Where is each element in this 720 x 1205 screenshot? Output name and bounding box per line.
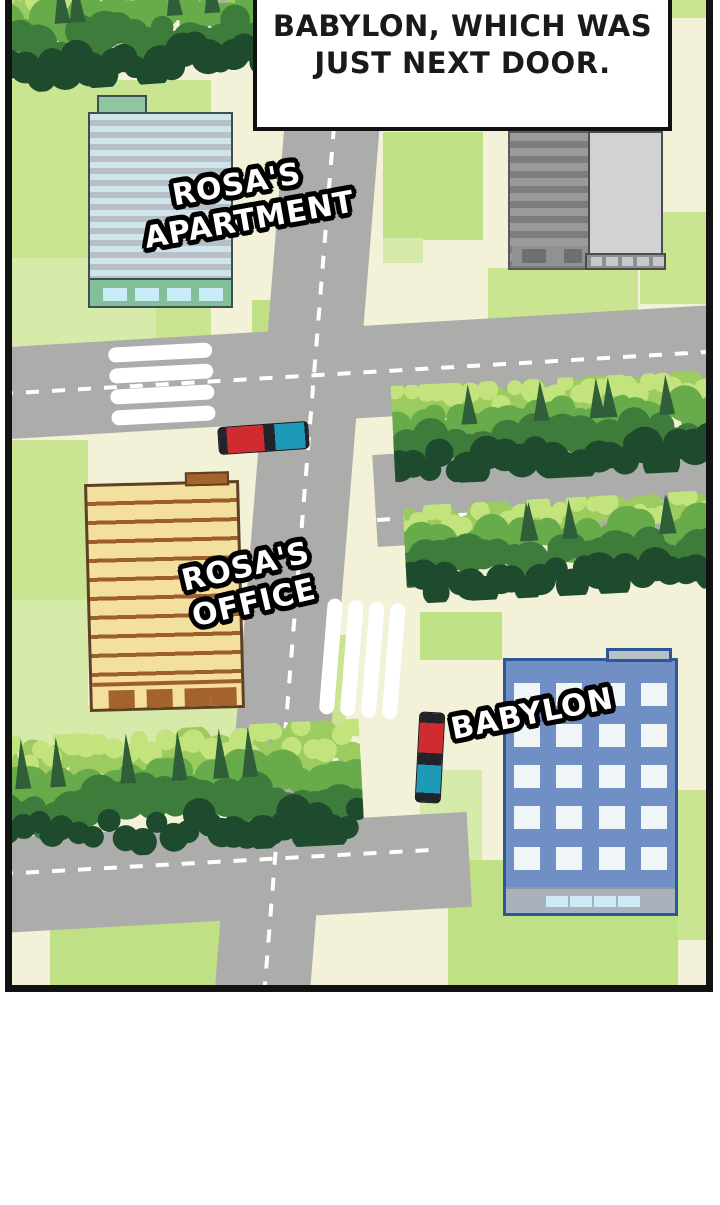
office-roof-block bbox=[185, 471, 229, 486]
speech-bubble-text: JUST NEXT DOOR. bbox=[257, 45, 668, 82]
babylon-roof-block bbox=[606, 648, 672, 662]
office-base bbox=[92, 679, 242, 709]
building-gray-light bbox=[588, 131, 663, 255]
babylon-base bbox=[506, 887, 675, 913]
building-gray-dark bbox=[508, 131, 594, 270]
building-gray-light-base bbox=[585, 253, 666, 270]
map-panel: ROSA'S APARTMENT ROSA'S OFFICE BABYLON B… bbox=[5, 0, 713, 992]
speech-bubble-text: BABYLON, WHICH WAS bbox=[257, 8, 668, 45]
apartment-base bbox=[90, 278, 231, 306]
hedge-right-lower bbox=[403, 490, 713, 604]
crosswalk-vertical bbox=[319, 598, 412, 720]
hedge-right-upper bbox=[391, 370, 713, 486]
grass-patch bbox=[6, 440, 88, 605]
hedge-top-left bbox=[5, 0, 271, 94]
comic-page: ROSA'S APARTMENT ROSA'S OFFICE BABYLON B… bbox=[0, 0, 720, 1205]
hedge-bottom-left bbox=[5, 719, 365, 863]
grass-patch bbox=[420, 612, 502, 660]
bus-vertical bbox=[415, 711, 446, 803]
grass-patch bbox=[676, 790, 712, 940]
crosswalk-upper bbox=[108, 342, 216, 431]
speech-bubble: BABYLON, WHICH WAS JUST NEXT DOOR. bbox=[253, 0, 672, 131]
grass-patch bbox=[383, 132, 483, 240]
grass-patch bbox=[383, 238, 423, 263]
